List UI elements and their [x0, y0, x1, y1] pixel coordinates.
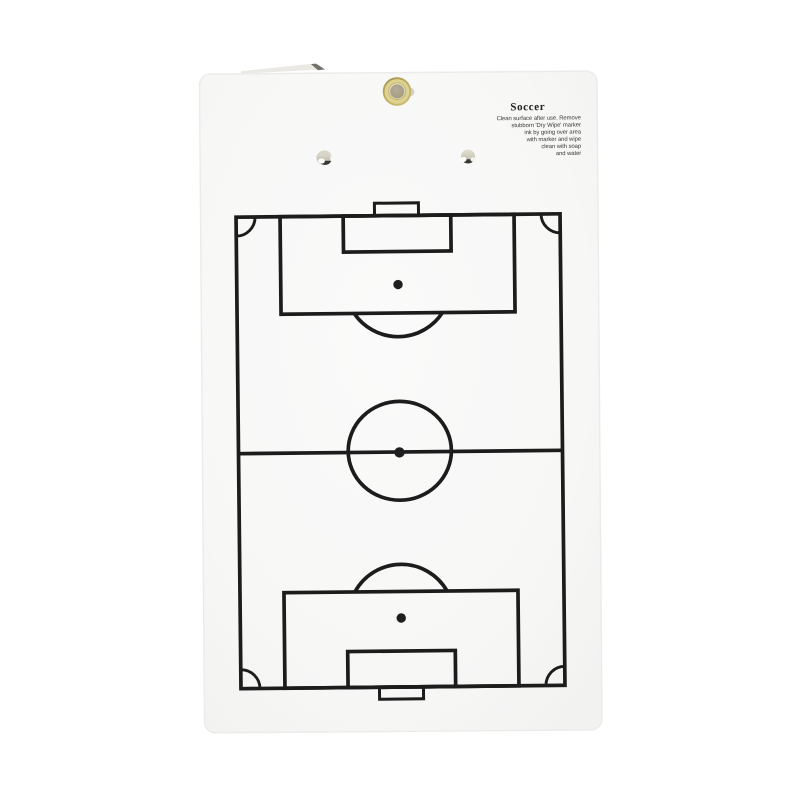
svg-text:Soccer: Soccer — [510, 101, 545, 113]
svg-text:stubborn 'Dry Wipe' marker: stubborn 'Dry Wipe' marker — [511, 122, 581, 129]
svg-text:clean with soap: clean with soap — [541, 144, 582, 150]
svg-text:with marker and wipe: with marker and wipe — [526, 137, 582, 144]
svg-text:ink by going over area: ink by going over area — [524, 130, 581, 137]
svg-text:and water: and water — [556, 151, 581, 157]
svg-text:Clean surface after use. Remov: Clean surface after use. Remove — [497, 115, 582, 122]
